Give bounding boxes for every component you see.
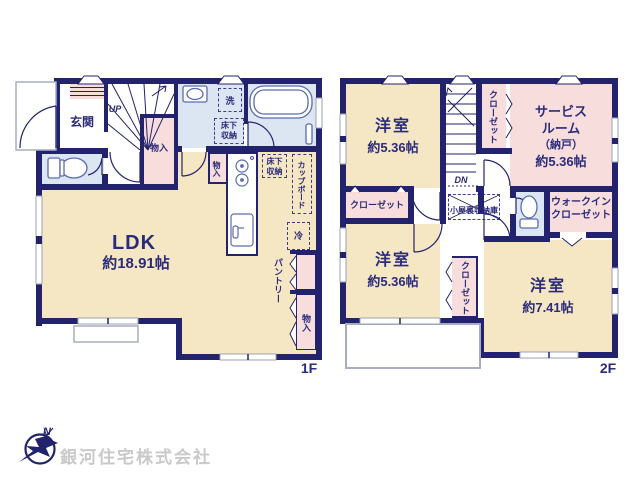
window-icon [36,98,618,360]
compass-icon [19,426,58,464]
toilet-1f-icon [48,158,87,178]
washbasin-icon [183,86,207,102]
folding-door-icon [290,0,640,346]
sink-icon [231,214,253,246]
stairs-1f [108,84,174,150]
plan-linework [0,0,640,480]
terrace [74,326,138,342]
bathtub-icon [250,86,312,144]
attic-ladder-icon [449,195,499,219]
stove-icon [236,157,254,187]
stairs-2f [444,88,480,186]
floorplan-canvas: 玄関 UP 物入 洗 床下 収納 物入 床下 収納 カップボード 冷 LDK 約… [0,0,640,480]
toilet-2f-icon [520,196,538,228]
entrance-porch [16,82,56,150]
vent-icon [78,76,582,84]
balcony-rail [346,324,480,368]
